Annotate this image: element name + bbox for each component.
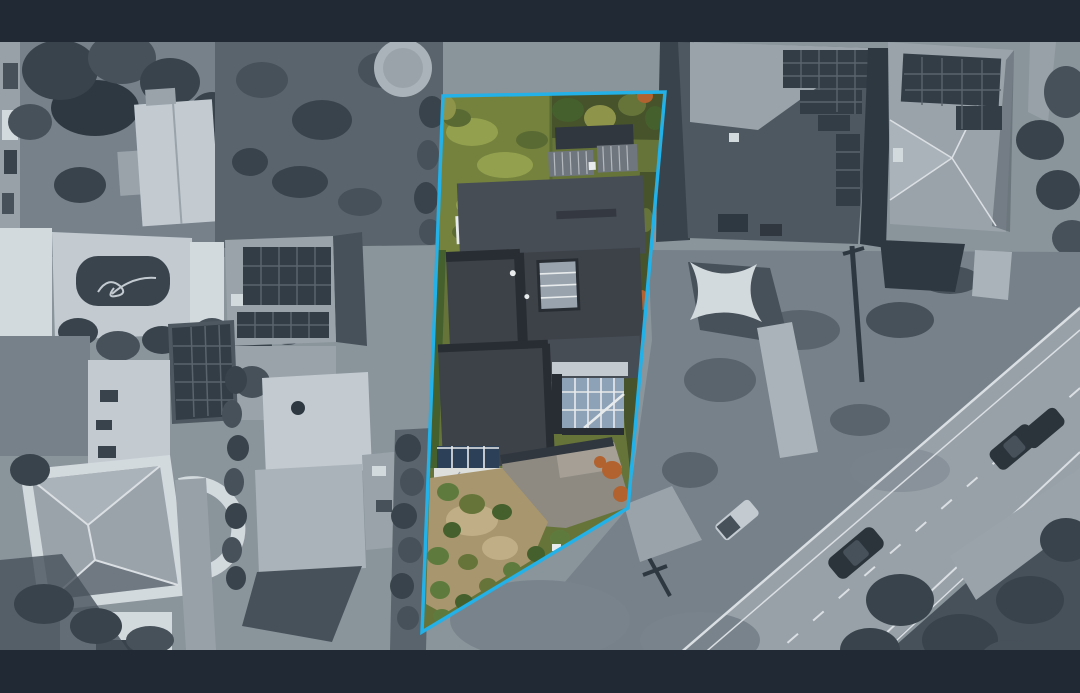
solar-house-east xyxy=(656,42,872,244)
skylight xyxy=(536,258,580,312)
letterbox-top xyxy=(0,0,1080,42)
aerial-photo xyxy=(0,0,1080,693)
letterbox-bottom xyxy=(0,650,1080,693)
conservatory xyxy=(552,362,628,435)
tree-icon xyxy=(8,104,52,140)
parked-car-icon xyxy=(4,150,17,174)
orange-shrub xyxy=(613,486,629,502)
tree-icon xyxy=(22,40,98,100)
solar-panel-array-icon xyxy=(237,247,331,338)
roof-hatch xyxy=(231,294,243,306)
rear-neighbour-yard xyxy=(215,39,445,248)
driveway-crossing xyxy=(972,250,1012,300)
parked-car-icon xyxy=(3,63,18,89)
solar-house-far-east xyxy=(888,42,1014,232)
sunroom-roof-edge xyxy=(552,362,628,376)
roof-vent xyxy=(291,401,305,415)
tree-icon xyxy=(54,167,106,203)
aerial-photo-frame xyxy=(0,0,1080,693)
parked-car-icon xyxy=(2,193,14,214)
swimming-pool xyxy=(76,256,170,306)
pool-house-roof xyxy=(0,228,52,338)
roof-hatch xyxy=(729,133,739,142)
house-shadow xyxy=(880,240,965,292)
